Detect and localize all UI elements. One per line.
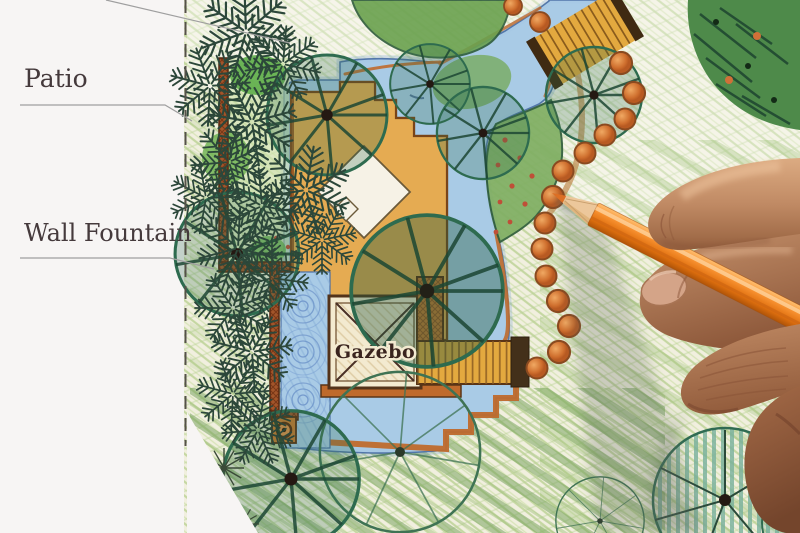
stepping-stone <box>553 161 574 182</box>
stepping-stone <box>623 82 645 104</box>
stepping-stone <box>615 109 636 130</box>
patio-label: Patio <box>24 64 88 93</box>
stepping-stone <box>527 358 548 379</box>
stepping-stone <box>610 52 632 74</box>
plan-drawing: Patio Wall Fountain Gazebo <box>0 0 800 533</box>
stepping-stone <box>535 213 556 234</box>
gazebo-label: Gazebo <box>335 341 415 363</box>
stepping-stone <box>548 341 570 363</box>
stepping-stone <box>536 266 557 287</box>
landscape-plan-photo: Patio Wall Fountain Gazebo <box>0 0 800 533</box>
tree-symbol <box>437 87 529 179</box>
stepping-stone <box>530 12 550 32</box>
stepping-stone <box>504 0 522 15</box>
stepping-stone <box>547 290 569 312</box>
stepping-stone <box>532 239 553 260</box>
stepping-stone <box>595 125 616 146</box>
boardwalk-end-cap <box>511 337 529 387</box>
stepping-stone <box>575 143 596 164</box>
wall-fountain-label: Wall Fountain <box>24 219 192 247</box>
